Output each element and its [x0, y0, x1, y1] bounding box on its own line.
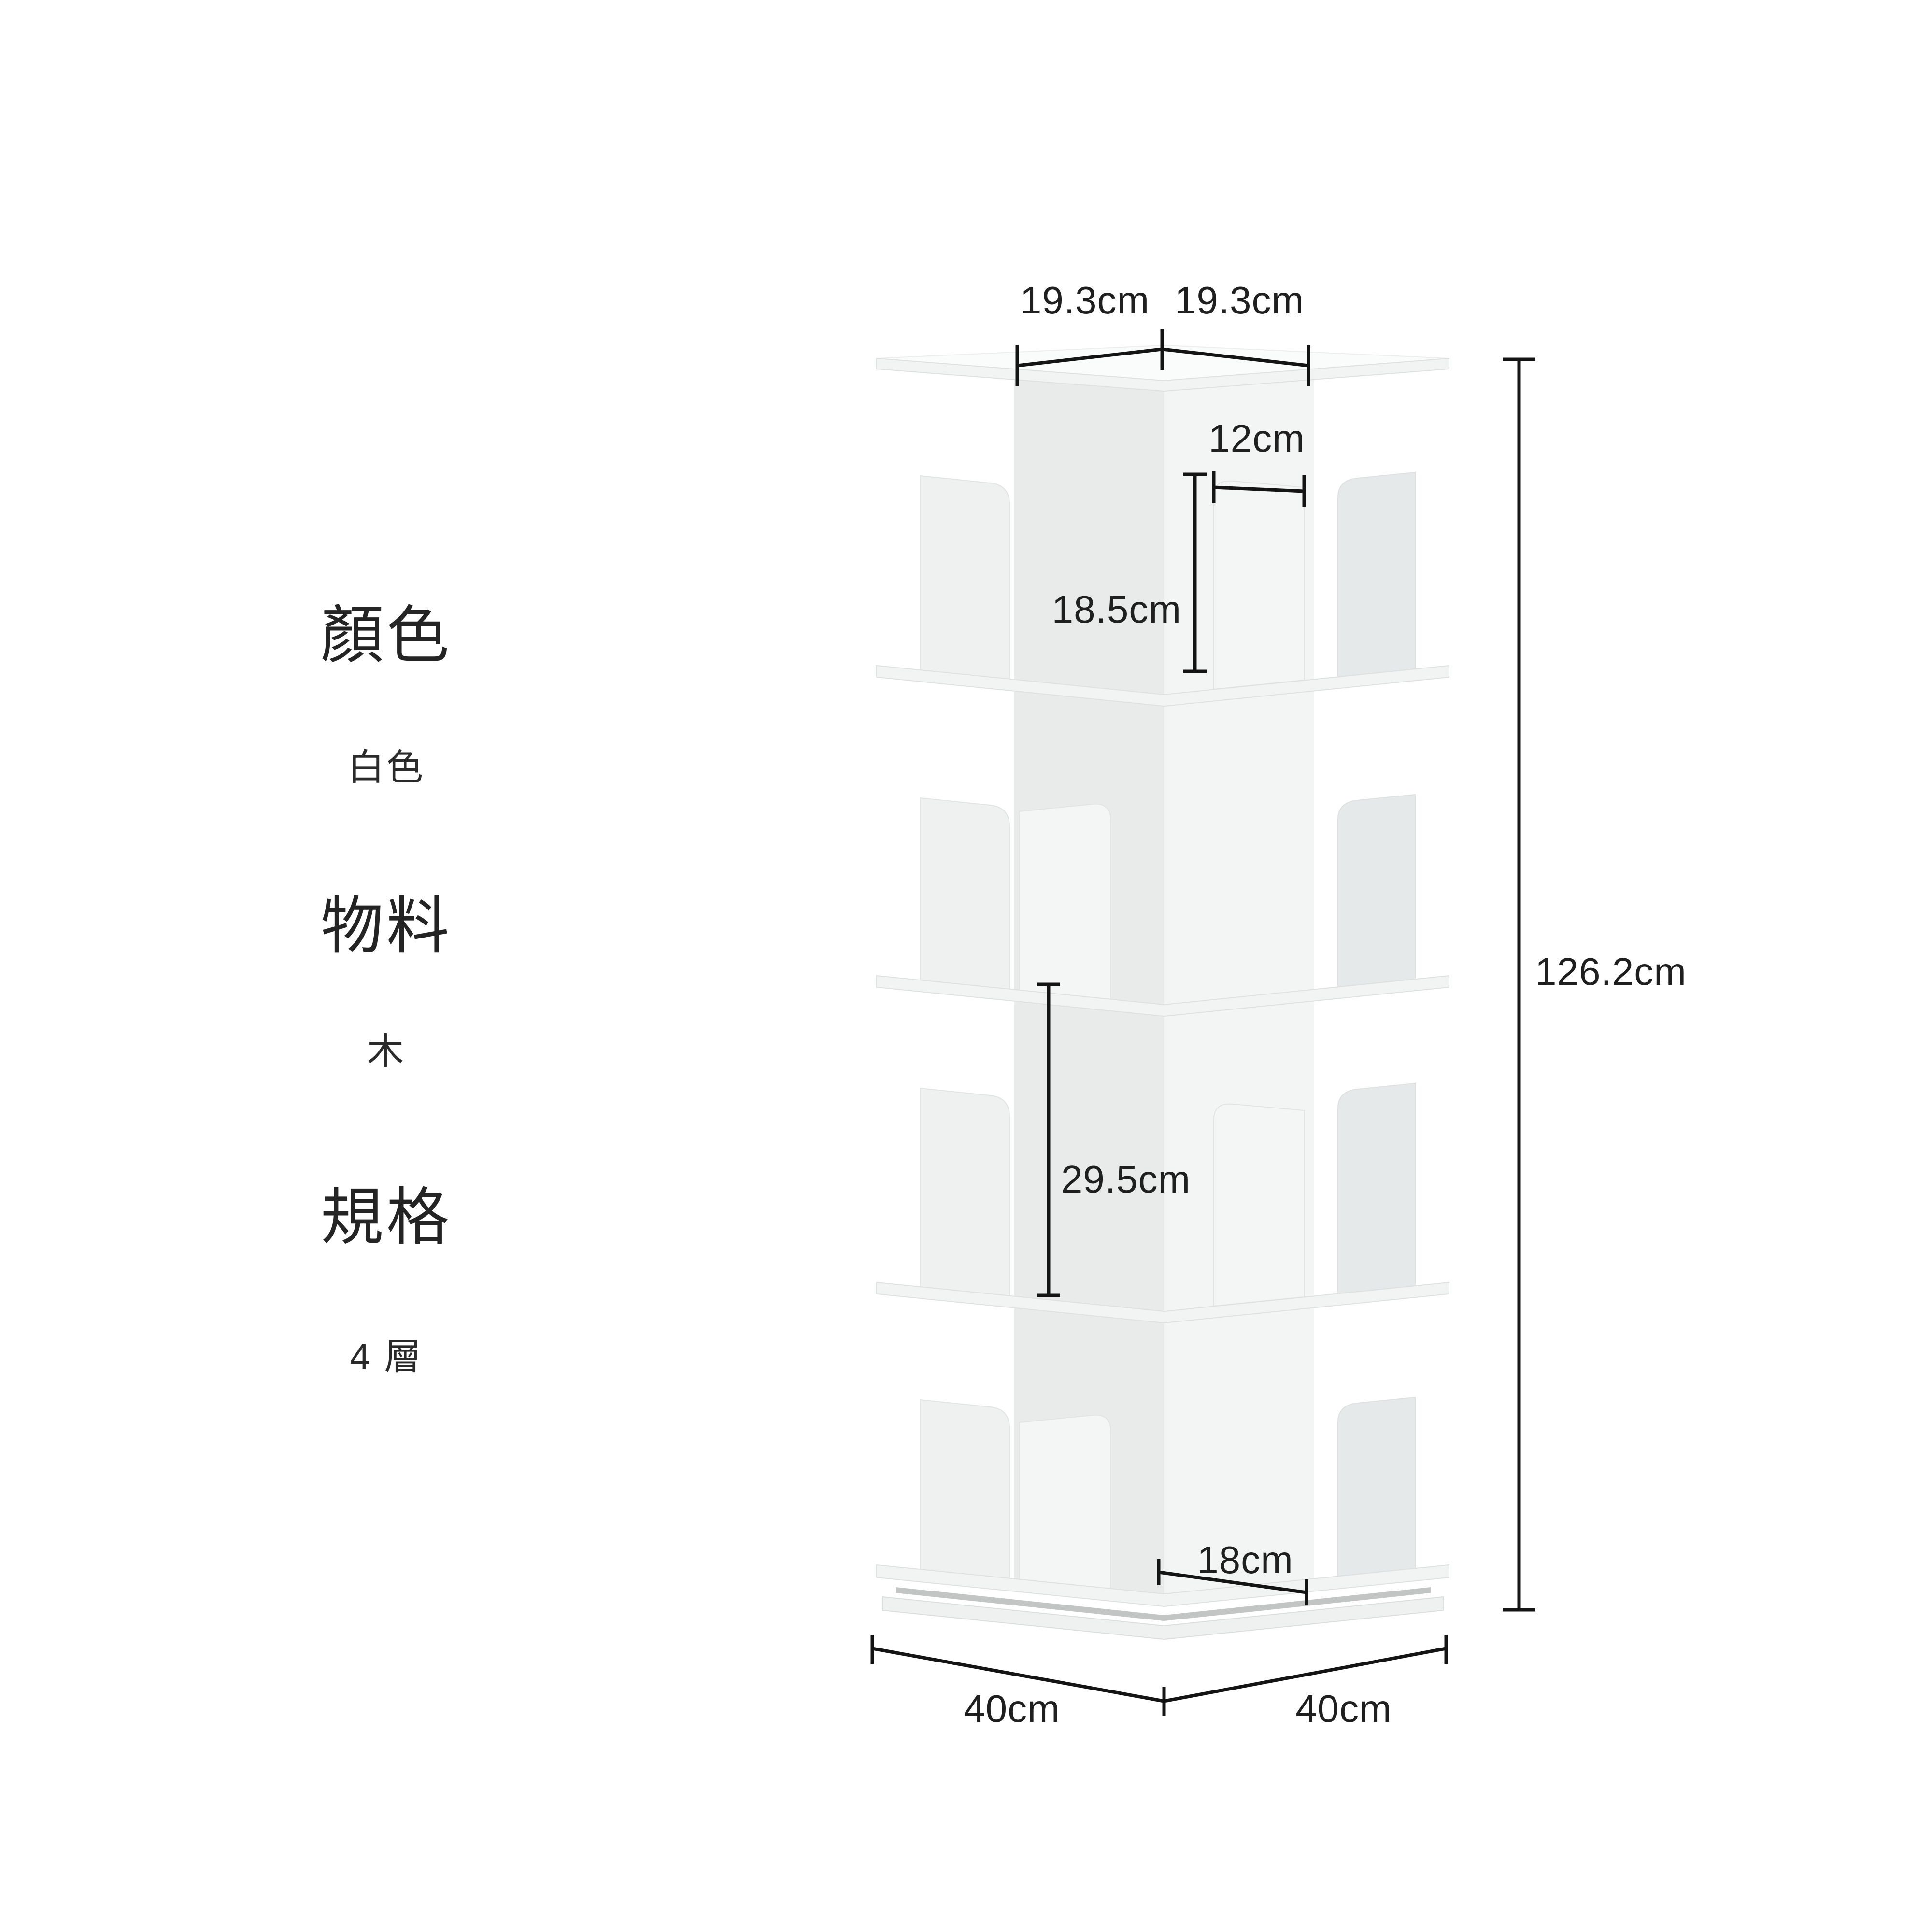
tier3-divider-left — [920, 1088, 1009, 1296]
tier2-divider-right — [1338, 795, 1415, 987]
label-divider-width: 12cm — [1194, 419, 1320, 458]
tier-4 — [920, 1308, 1415, 1594]
tier3-divider-right — [1338, 1083, 1415, 1293]
spec-size-label: 規格 — [266, 1186, 507, 1249]
tier1-divider-left — [920, 476, 1009, 679]
spec-sheet: 顏色 白色 物料 木 規格 4 層 19.3cm 19.3cm 12cm 18.… — [0, 0, 1932, 1932]
label-top-left-width: 19.3cm — [1012, 281, 1157, 320]
dim-total-height — [1503, 359, 1535, 1610]
label-divider-height: 18.5cm — [1037, 590, 1181, 629]
label-tier-height: 29.5cm — [1058, 1160, 1193, 1199]
tier1-left-wall — [1014, 376, 1164, 695]
tier1-divider-mid-right — [1214, 481, 1304, 689]
spec-material-value: 木 — [266, 1034, 507, 1070]
tier1-divider-right — [1338, 472, 1415, 677]
tier2-right-wall — [1164, 691, 1314, 1005]
tier4-divider-left — [920, 1400, 1009, 1578]
spec-color-label: 顏色 — [266, 604, 507, 667]
tier3-divider-mid-right — [1214, 1104, 1304, 1306]
tier-3 — [920, 1001, 1415, 1311]
tier-1 — [920, 376, 1415, 695]
tier2-divider-left — [920, 798, 1009, 989]
label-base-inner-width: 18cm — [1173, 1541, 1318, 1579]
tier4-divider-right — [1338, 1397, 1415, 1576]
tier-2 — [920, 691, 1415, 1005]
label-base-right-width: 40cm — [1271, 1690, 1416, 1728]
tier2-divider-mid-left — [1019, 804, 1111, 999]
spec-size-value: 4 層 — [266, 1339, 507, 1376]
tier4-divider-mid-left — [1019, 1415, 1111, 1589]
label-total-height: 126.2cm — [1535, 952, 1738, 991]
spec-material-label: 物料 — [266, 895, 507, 957]
spec-color-value: 白色 — [266, 750, 507, 786]
tier3-left-wall — [1014, 1001, 1164, 1311]
label-base-left-width: 40cm — [939, 1690, 1084, 1728]
label-top-right-width: 19.3cm — [1167, 281, 1312, 320]
